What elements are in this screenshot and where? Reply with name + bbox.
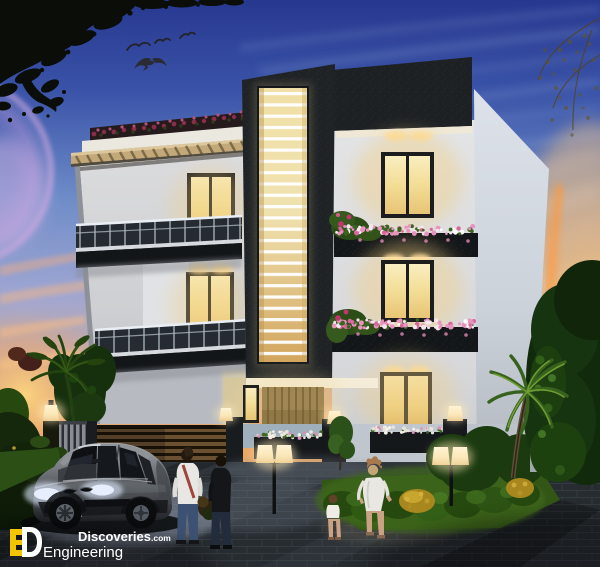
- svg-text:Engineering: Engineering: [43, 544, 123, 561]
